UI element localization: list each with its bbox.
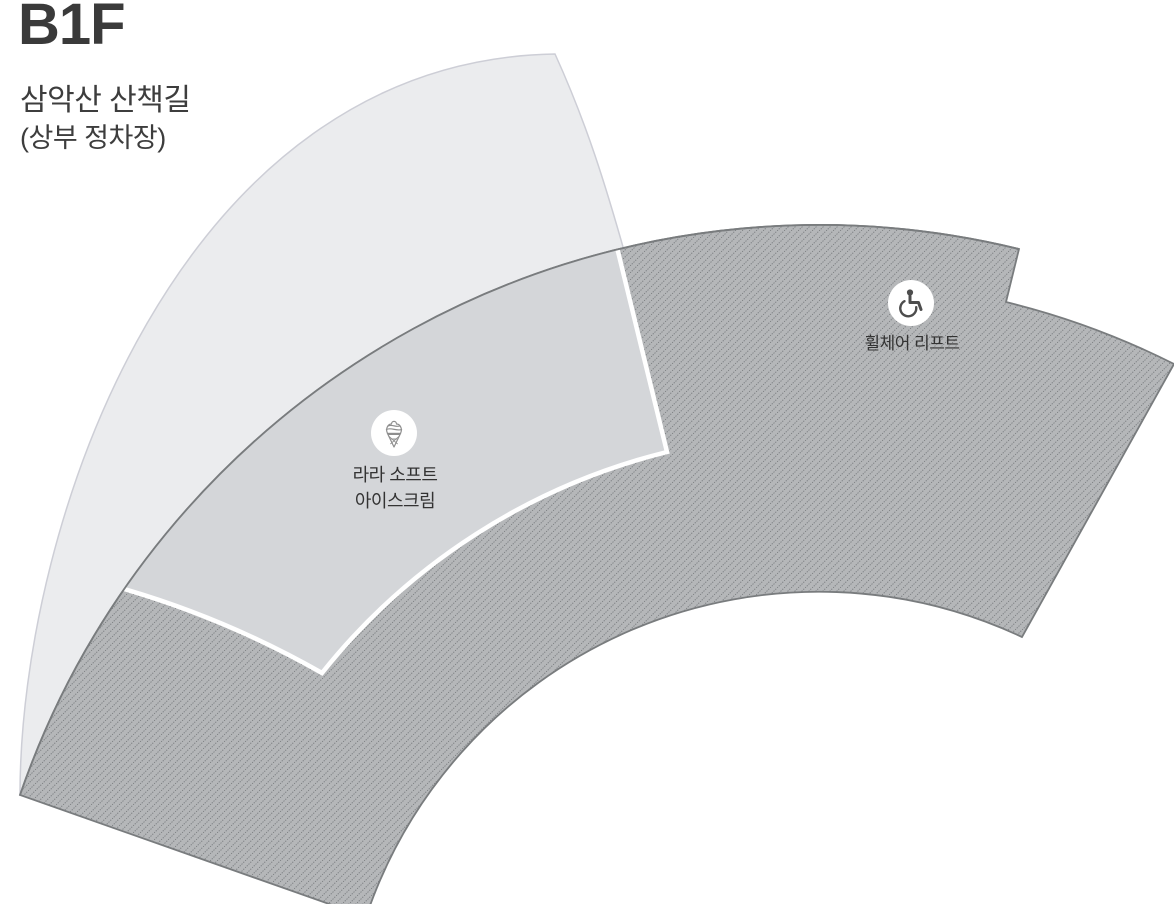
location-sub: (상부 정차장) <box>20 124 166 154</box>
poi-label-line1: 휠체어 리프트 <box>864 334 959 353</box>
floor-label: B1F <box>18 0 125 54</box>
poi-label-soft-ice-cream: 라라 소프트 아이스크림 <box>353 462 438 514</box>
poi-marker-soft-ice-cream[interactable] <box>371 410 417 456</box>
poi-marker-wheelchair-lift[interactable] <box>888 280 934 326</box>
location-name: 삼악산 산책길 <box>20 84 190 117</box>
floor-map-canvas <box>0 0 1174 904</box>
poi-label-line2: 아이스크림 <box>355 491 435 511</box>
poi-label-line1: 라라 소프트 <box>353 465 438 485</box>
floor-map-page: B1F 삼악산 산책길 (상부 정차장) 라라 소프트 아이스크림 휠체어 리프… <box>0 0 1174 904</box>
poi-label-wheelchair-lift: 휠체어 리프트 <box>864 331 959 357</box>
